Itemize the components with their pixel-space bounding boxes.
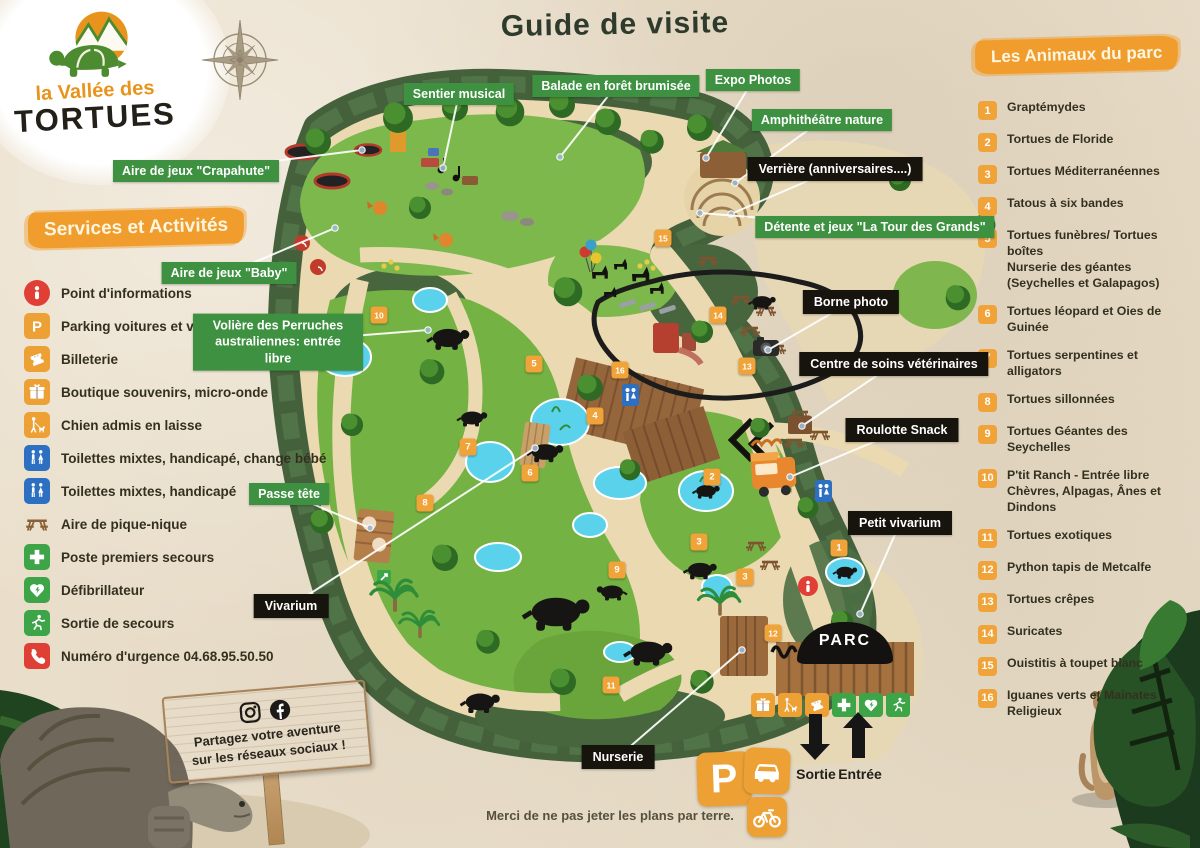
map-marker-6: 6 [522,465,539,482]
parc-entrance-sign: PARC [797,622,893,664]
animal-number-chip: 6 [978,305,997,324]
animal-item-label: Ouistitis à toupet blanc [1007,656,1143,672]
animal-item: 12Python tapis de Metcalfe [978,560,1193,580]
park-guide-map: la Vallée des TORTUES Guide de visite Se… [0,0,1200,848]
service-item-label: Toilettes mixtes, handicapé, change bébé [61,451,326,466]
animal-number-chip: 3 [978,165,997,184]
service-item: Poste premiers secours [24,544,344,570]
animal-number-chip: 2 [978,133,997,152]
dog-icon [24,412,50,438]
map-label: Roulotte Snack [846,418,959,442]
runner-icon [886,693,910,717]
map-marker-3: 3 [737,569,754,586]
animal-item-label: Graptémydes [1007,100,1086,116]
animal-item-label: P'tit Ranch - Entrée libreChèvres, Alpag… [1007,468,1193,516]
map-marker-14: 14 [710,307,727,324]
map-marker-7: 7 [460,439,477,456]
map-marker-8: 8 [417,495,434,512]
overlay: la Vallée des TORTUES Guide de visite Se… [0,0,1200,848]
animal-number-chip: 16 [978,689,997,708]
animal-item: 11Tortues exotiques [978,528,1193,548]
map-marker-9: 9 [609,562,626,579]
animal-number-chip: 13 [978,593,997,612]
service-item-label: Défibrillateur [61,583,144,598]
animals-header: Les Animaux du parc [975,35,1179,74]
animal-item: 1Graptémydes [978,100,1193,120]
animal-item: 16Iguanes verts et Mainates Religieux [978,688,1193,720]
animal-item: 8Tortues sillonnées [978,392,1193,412]
service-item-label: Toilettes mixtes, handicapé [61,484,236,499]
animal-item-label: Tortues Méditerranéennes [1007,164,1160,180]
service-item: Toilettes mixtes, handicapé, change bébé [24,445,344,471]
animal-item-label: Tortues exotiques [1007,528,1112,544]
map-label: Borne photo [803,290,899,314]
map-label: Expo Photos [706,69,800,91]
animal-item: 2Tortues de Floride [978,132,1193,152]
animal-number-chip: 1 [978,101,997,120]
animal-item-label: Tatous à six bandes [1007,196,1124,212]
map-label: Détente et jeux "La Tour des Grands" [755,216,994,238]
info-icon [24,280,50,306]
animal-number-chip: 9 [978,425,997,444]
service-item: Numéro d'urgence 04.68.95.50.50 [24,643,344,669]
map-label: Aire de jeux "Crapahute" [113,160,279,182]
entry-arrow-icon [843,712,873,758]
animal-item-label: Tortues Géantes des Seychelles [1007,424,1193,456]
gift-icon [751,693,775,717]
map-label: Passe tête [249,483,329,505]
map-label: Aire de jeux "Baby" [162,262,297,284]
gift-icon [24,379,50,405]
animal-item: 4Tatous à six bandes [978,196,1193,216]
car-icon [743,747,791,795]
map-marker-5: 5 [526,356,543,373]
animal-item: 15Ouistitis à toupet blanc [978,656,1193,676]
map-marker-13: 13 [739,358,756,375]
map-marker-10: 10 [371,307,388,324]
entree-label: Entrée [830,766,890,782]
animal-item: 7Tortues serpentines et alligators [978,348,1193,380]
entrance-service-icons [751,693,910,717]
service-item-label: Aire de pique-nique [61,517,187,532]
service-item-label: Boutique souvenirs, micro-onde [61,385,268,400]
animal-item-label: Python tapis de Metcalfe [1007,560,1151,576]
compass-rose-icon [198,14,282,106]
animal-item: 13Tortues crêpes [978,592,1193,612]
animal-item: 3Tortues Méditerranéennes [978,164,1193,184]
animal-item: 14Suricates [978,624,1193,644]
animal-item-label: Tortues funèbres/ Tortues boîtesNurserie… [1007,228,1193,292]
page-title: Guide de visite [450,5,781,45]
service-item: Chien admis en laisse [24,412,344,438]
service-item-label: Billeterie [61,352,118,367]
map-marker-4: 4 [587,408,604,425]
cross-icon [24,544,50,570]
animal-item-label: Tortues serpentines et alligators [1007,348,1193,380]
map-marker-2: 2 [704,469,721,486]
map-label: Balade en forêt brumisée [532,75,699,97]
animal-item: 9Tortues Géantes des Seychelles [978,424,1193,456]
svg-text:P: P [32,318,42,335]
map-marker-1: 1 [831,540,848,557]
map-label: Volière des Perruches australiennes: ent… [193,314,363,371]
wc-icon [24,478,50,504]
animal-item-label: Iguanes verts et Mainates Religieux [1007,688,1193,720]
animal-number-chip: 4 [978,197,997,216]
animal-number-chip: 12 [978,561,997,580]
parking-icon: P [24,313,50,339]
service-item-label: Numéro d'urgence 04.68.95.50.50 [61,649,274,664]
exit-arrow-icon [800,714,830,760]
facebook-icon [268,698,292,722]
service-item-label: Poste premiers secours [61,550,214,565]
sign-post [263,772,285,845]
map-marker-15: 15 [655,230,672,247]
map-marker-12: 12 [765,625,782,642]
map-marker-11: 11 [603,677,620,694]
service-item: Boutique souvenirs, micro-onde [24,379,344,405]
animal-number-chip: 10 [978,469,997,488]
footer-note: Merci de ne pas jeter les plans par terr… [390,808,830,823]
animal-number-chip: 8 [978,393,997,412]
map-label: Centre de soins vétérinaires [799,352,988,376]
animal-item-label: Tortues sillonnées [1007,392,1115,408]
defib-icon [24,577,50,603]
service-item-label: Point d'informations [61,286,192,301]
animal-item-label: Suricates [1007,624,1062,640]
ticket-icon [24,346,50,372]
animal-item: 10P'tit Ranch - Entrée libreChèvres, Alp… [978,468,1193,516]
service-item: Aire de pique-nique [24,511,344,537]
social-share-sign: Partagez votre aventure sur les réseaux … [162,679,379,848]
service-item-label: Chien admis en laisse [61,418,202,433]
animal-item: 5Tortues funèbres/ Tortues boîtesNurseri… [978,228,1193,292]
service-item-label: Sortie de secours [61,616,174,631]
animals-legend: 1Graptémydes2Tortues de Floride3Tortues … [978,100,1193,732]
instagram-icon [238,701,262,725]
map-label: Nurserie [582,745,655,769]
picnic-icon [24,511,50,537]
map-marker-3: 3 [691,534,708,551]
phone-icon [24,643,50,669]
map-label: Amphithéâtre nature [752,109,892,131]
wc-icon [24,445,50,471]
animal-number-chip: 11 [978,529,997,548]
runner-icon [24,610,50,636]
animal-number-chip: 14 [978,625,997,644]
animal-number-chip: 15 [978,657,997,676]
animal-item: 6Tortues léopard et Oies de Guinée [978,304,1193,336]
animal-item-label: Tortues de Floride [1007,132,1113,148]
services-header: Services et Activités [28,207,245,249]
map-label: Verrière (anniversaires....) [748,157,923,181]
map-marker-16: 16 [612,362,629,379]
dog-icon [778,693,802,717]
map-label: Sentier musical [404,83,514,105]
animal-item-label: Tortues léopard et Oies de Guinée [1007,304,1193,336]
animal-item-label: Tortues crêpes [1007,592,1094,608]
map-label: Vivarium [254,594,329,618]
map-label: Petit vivarium [848,511,952,535]
